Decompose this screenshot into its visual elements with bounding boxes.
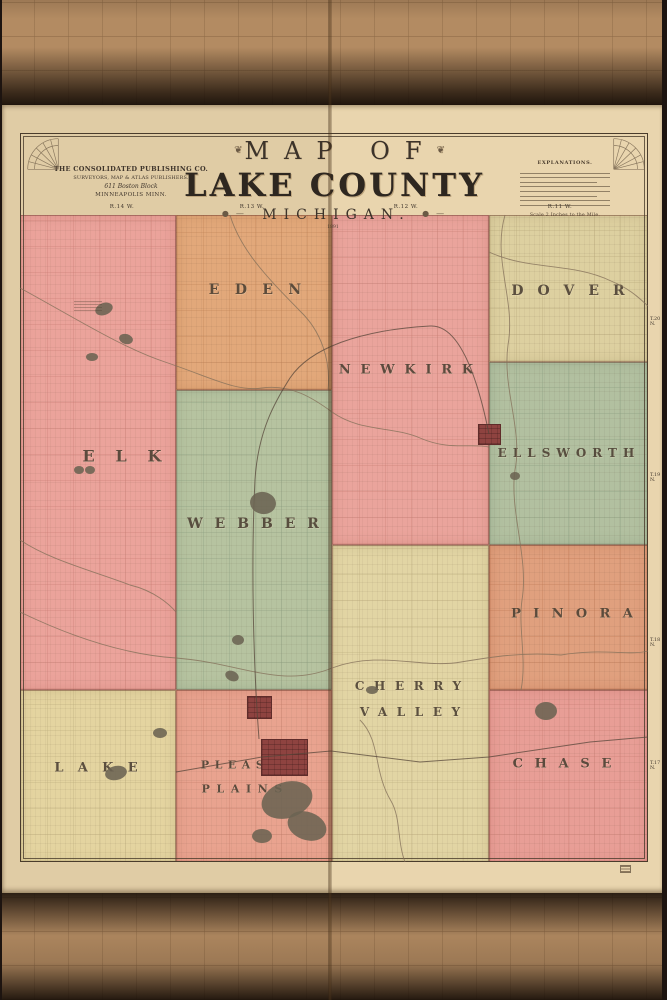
corner-fan-ornament-icon	[26, 137, 60, 171]
rule-ornament-icon: ●—	[422, 209, 451, 218]
title-state: ●— MICHIGAN. ●—	[150, 207, 516, 223]
title-map-of-text: MAP OF	[244, 137, 436, 165]
explanations-legend: EXPLANATIONS. Scale 2 Inches to the Mile…	[520, 160, 610, 218]
legend-heading: EXPLANATIONS.	[520, 160, 610, 166]
legend-symbol-row	[520, 201, 610, 206]
flourish-icon: ❦	[234, 145, 244, 156]
title-map-of: ❦MAP OF❦	[150, 137, 516, 165]
rule-ornament-icon: ●—	[222, 209, 251, 218]
title-county: LAKE COUNTY	[150, 166, 516, 204]
map-neatline-inner	[23, 136, 645, 859]
scanned-county-map-page: ELKEDENNEWKIRKDOVERELLSWORTHWEBBERPINORA…	[0, 0, 667, 1000]
margin-stamp	[620, 865, 631, 873]
margin-smudge-mark	[74, 301, 102, 311]
photo-edge-left	[0, 0, 2, 1000]
photo-edge-right	[662, 0, 667, 1000]
legend-scale-note: Scale 2 Inches to the Mile.	[520, 213, 610, 218]
map-title-block: ❦MAP OF❦ LAKE COUNTY ●— MICHIGAN. ●— 189…	[150, 137, 516, 230]
title-state-text: MICHIGAN.	[262, 207, 410, 223]
flourish-icon: ❦	[437, 145, 447, 156]
corner-fan-ornament-icon	[612, 137, 646, 171]
legend-symbol-rows	[520, 169, 610, 206]
title-year: 1891	[150, 225, 516, 230]
center-fold-seam	[328, 0, 332, 1000]
